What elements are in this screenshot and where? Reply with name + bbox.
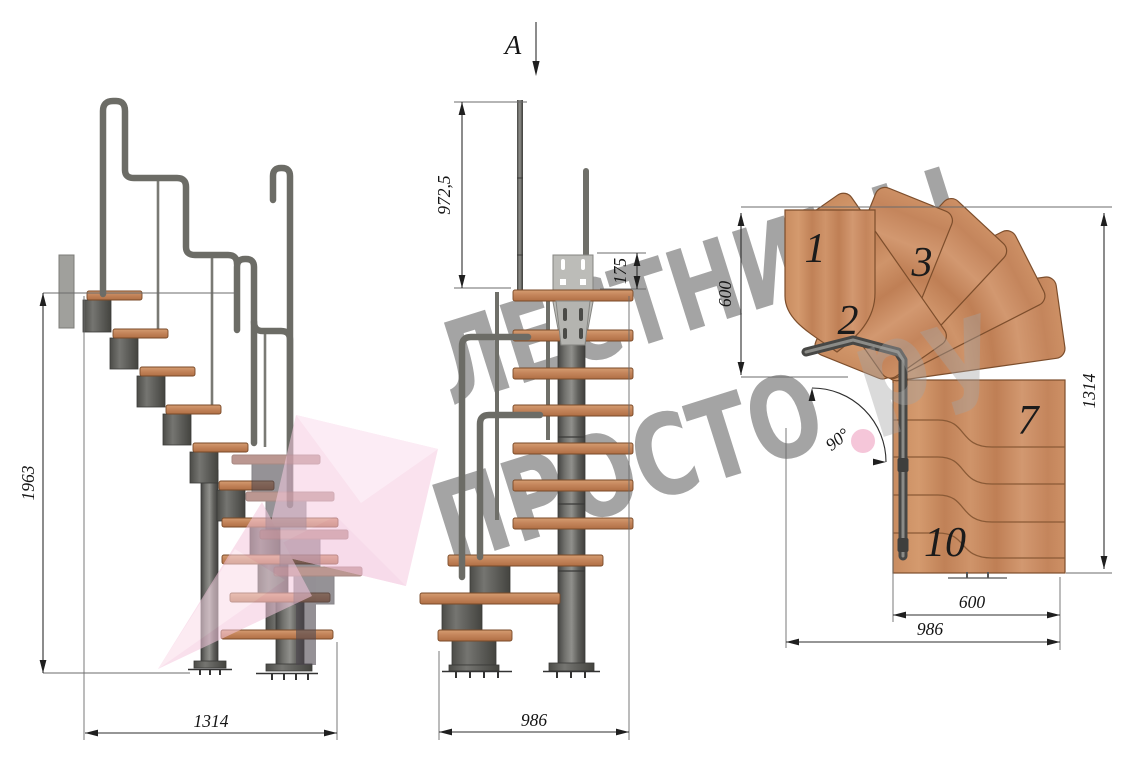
dim-front-width: 986: [521, 710, 548, 730]
dim-plan-bottom-step: 600: [959, 592, 986, 612]
dim-side-length: 1314: [194, 711, 229, 731]
side-front-handrail: [103, 101, 237, 294]
base-flange: [266, 664, 312, 671]
section-marker-label: A: [503, 30, 522, 60]
staircase-drawing: ЛЕСТНИЦЫ ПРОСТО: [0, 0, 1130, 763]
plan-step-7-label: 7: [1018, 398, 1041, 444]
plan-step-3-label: 3: [911, 240, 933, 286]
side-back-handrail-loop: [237, 259, 254, 443]
plan-step-1-label: 1: [805, 226, 826, 272]
base-flange: [449, 665, 499, 671]
drawing-page: ЛЕСТНИЦЫ ПРОСТО: [0, 0, 1130, 763]
wall-bracket: [59, 255, 74, 328]
front-handrail-post: [517, 100, 523, 292]
watermark-dot: [851, 429, 875, 453]
dim-plan-width: 986: [917, 619, 944, 639]
dim-side-height: 1963: [18, 465, 38, 500]
front-baluster: [546, 292, 550, 440]
dim-front-post-height: 972,5: [434, 175, 454, 215]
base-flange: [194, 661, 226, 668]
dim-front-plate-height: 175: [610, 258, 630, 285]
base-flange: [549, 663, 594, 671]
plan-step-10-label: 10: [924, 520, 966, 566]
plan-step-2-label: 2: [838, 298, 859, 344]
dim-plan-length: 1314: [1079, 373, 1099, 408]
front-baluster: [495, 292, 499, 520]
dim-plan-top-depth: 600: [715, 281, 735, 308]
mounting-plate-lower: [556, 301, 590, 345]
side-steps-upper: [83, 291, 274, 521]
